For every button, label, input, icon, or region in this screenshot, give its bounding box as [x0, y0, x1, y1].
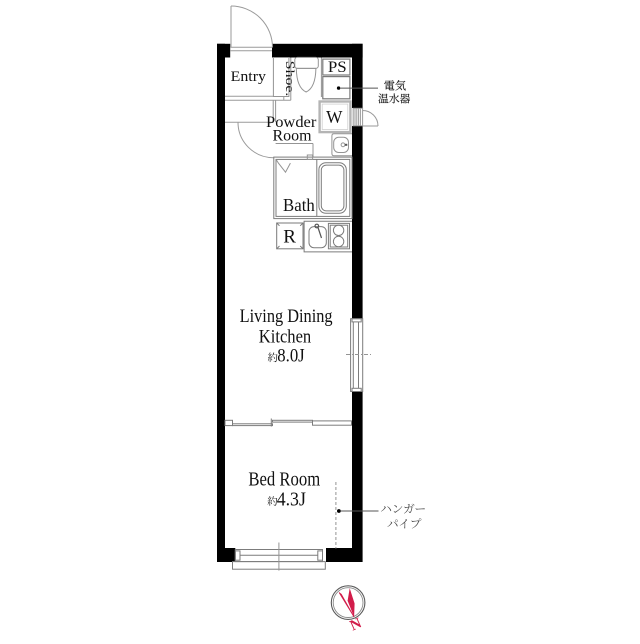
- svg-text:Room: Room: [273, 127, 312, 144]
- svg-text:Bed Room: Bed Room: [248, 468, 320, 490]
- svg-text:W: W: [326, 107, 342, 127]
- svg-text:8.0J: 8.0J: [277, 346, 304, 367]
- svg-text:Bath: Bath: [283, 195, 315, 215]
- svg-text:R: R: [283, 226, 296, 247]
- svg-text:4.3J: 4.3J: [277, 489, 307, 510]
- svg-text:Living Dining: Living Dining: [240, 306, 333, 327]
- svg-text:PS: PS: [328, 59, 347, 76]
- svg-text:Entry: Entry: [231, 69, 267, 85]
- svg-text:Kitchen: Kitchen: [259, 327, 312, 348]
